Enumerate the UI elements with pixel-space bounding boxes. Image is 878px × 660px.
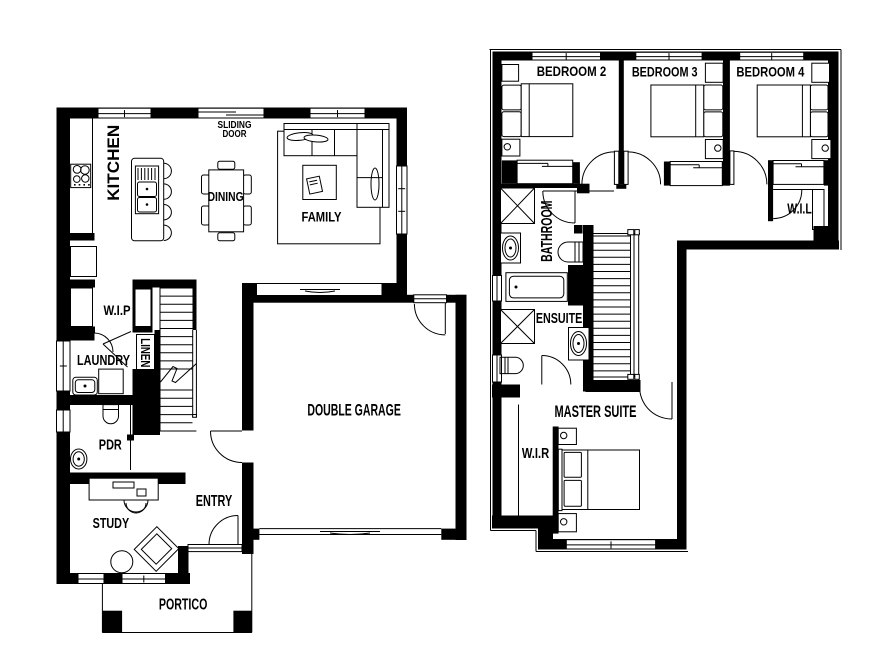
svg-text:PORTICO: PORTICO	[159, 597, 208, 614]
svg-text:W.I.L: W.I.L	[787, 202, 812, 218]
svg-text:STUDY: STUDY	[93, 515, 130, 532]
svg-text:BATHROOM: BATHROOM	[539, 201, 556, 262]
svg-text:BEDROOM 2: BEDROOM 2	[537, 63, 607, 79]
svg-text:FAMILY: FAMILY	[302, 208, 343, 224]
svg-text:ENSUITE: ENSUITE	[536, 310, 583, 327]
svg-text:BEDROOM 3: BEDROOM 3	[632, 64, 698, 80]
svg-text:DINING: DINING	[208, 190, 244, 204]
svg-text:ENTRY: ENTRY	[196, 493, 233, 510]
svg-text:KITCHEN: KITCHEN	[104, 125, 123, 201]
svg-text:BEDROOM 4: BEDROOM 4	[736, 64, 804, 80]
svg-text:W.I.P: W.I.P	[104, 302, 131, 318]
svg-text:MASTER SUITE: MASTER SUITE	[555, 402, 637, 421]
svg-text:PDR: PDR	[99, 437, 122, 454]
svg-text:LINEN: LINEN	[138, 338, 153, 367]
svg-text:DOUBLE GARAGE: DOUBLE GARAGE	[307, 401, 401, 420]
svg-text:LAUNDRY: LAUNDRY	[77, 352, 130, 369]
svg-text:DOOR: DOOR	[223, 129, 248, 140]
svg-text:W.I.R: W.I.R	[522, 445, 549, 462]
